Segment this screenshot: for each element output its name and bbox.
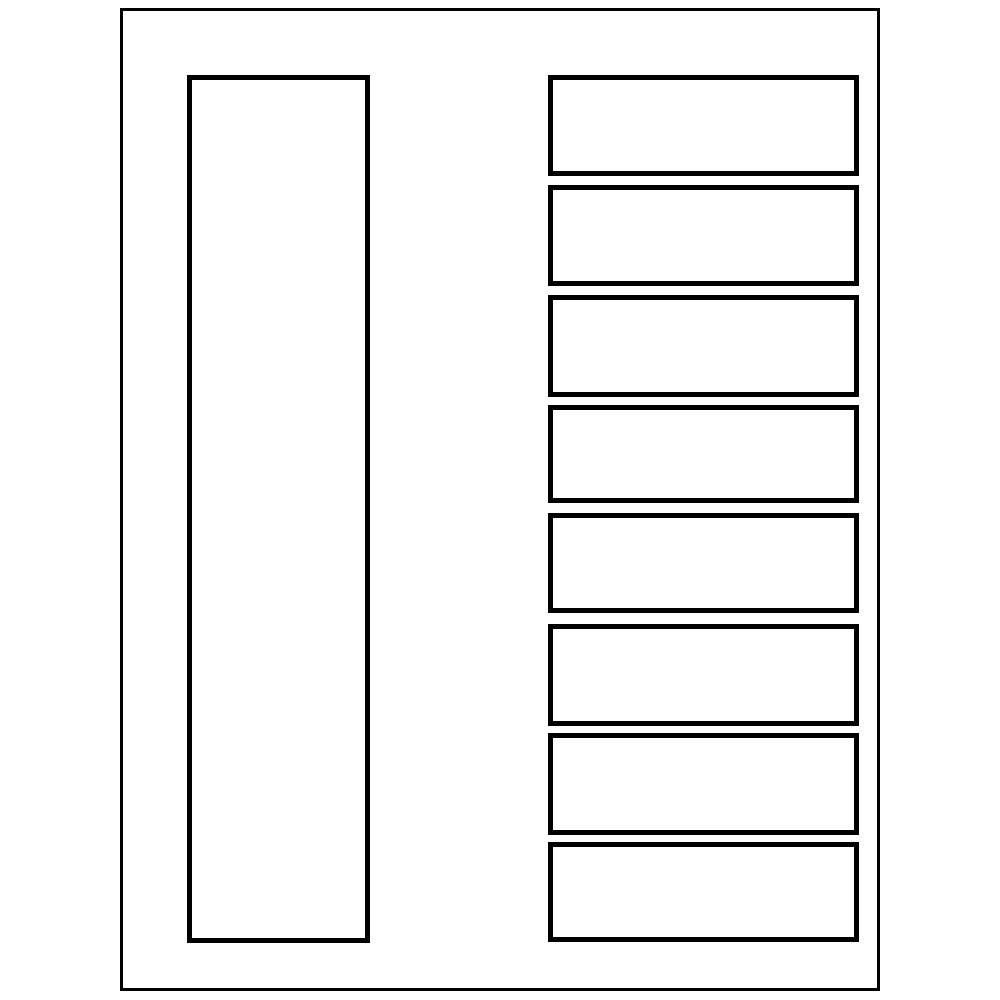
right-label-outline-5 (548, 513, 859, 613)
right-label-outline-8 (548, 842, 859, 942)
right-label-outline-7 (548, 733, 859, 835)
right-label-outline-4 (548, 405, 859, 503)
right-label-outline-3 (548, 295, 859, 397)
right-label-outline-6 (548, 624, 859, 726)
left-spine-label-outline (187, 75, 370, 943)
right-label-outline-2 (548, 185, 859, 286)
label-template-sheet (0, 0, 1000, 1000)
right-label-outline-1 (548, 75, 859, 176)
